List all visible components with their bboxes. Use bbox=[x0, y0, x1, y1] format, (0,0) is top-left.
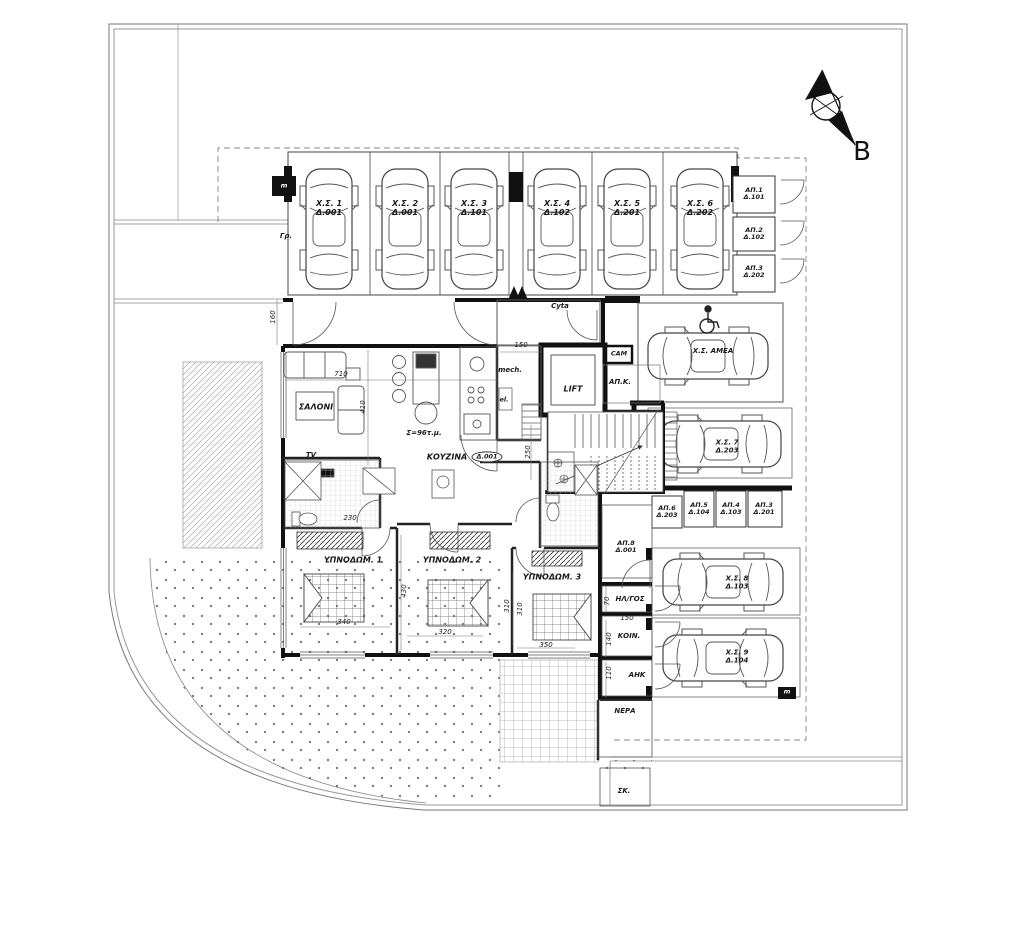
dim-310-a: 310 bbox=[516, 602, 524, 615]
apk-label: ΑΠ.Κ. bbox=[609, 379, 631, 387]
kitchen-label: ΚΟΥΖΙΝΑ bbox=[427, 454, 467, 463]
living-room-label: ΣΑΛΟΝΙ bbox=[299, 404, 333, 413]
stall-7-label: Χ.Σ. 7Δ.203 bbox=[716, 439, 739, 454]
dim-310-b: 310 bbox=[503, 599, 511, 612]
cyta-room bbox=[497, 300, 600, 345]
stall-2-label: Χ.Σ. 2Δ.001 bbox=[392, 200, 418, 218]
storage-ap4-label: ΑΠ.4Δ.103 bbox=[720, 502, 741, 516]
kitchen-fixtures bbox=[393, 347, 498, 440]
stall-8-label: Χ.Σ. 8Δ.103 bbox=[726, 575, 749, 590]
dim-320: 320 bbox=[438, 628, 451, 636]
dim-350: 350 bbox=[539, 641, 552, 649]
north-arrow bbox=[805, 70, 855, 145]
stall-4-label: Χ.Σ. 4Δ.102 bbox=[544, 200, 570, 218]
common-room-label: ΚΟΙΝ. bbox=[618, 633, 641, 641]
garbage-room-label: ΣΚ. bbox=[618, 788, 631, 796]
water-meters-label: ΝΕΡΑ bbox=[614, 708, 635, 716]
stall-1-label: Χ.Σ. 1Δ.001 bbox=[316, 200, 342, 218]
dim-160: 160 bbox=[269, 310, 277, 323]
mailboxes-label: Γρ. bbox=[280, 233, 292, 241]
terrace-grid bbox=[500, 660, 598, 762]
storage-ap2-label: ΑΠ.2Δ.102 bbox=[743, 227, 764, 241]
storage-right-doors bbox=[780, 180, 804, 283]
storage-ap5-label: ΑΠ.5Δ.104 bbox=[688, 502, 709, 516]
storage-ap3-label: ΑΠ.3Δ.202 bbox=[743, 265, 764, 279]
mech-closet bbox=[497, 346, 541, 440]
el-label: el. bbox=[499, 396, 508, 403]
storage-ap3b-label: ΑΠ.3Δ.201 bbox=[753, 502, 774, 516]
sidewalk-dotted-strip bbox=[598, 760, 652, 772]
dim-410: 410 bbox=[359, 400, 367, 413]
dim-230: 230 bbox=[343, 514, 356, 522]
dim-250: 250 bbox=[524, 445, 532, 458]
cam-label: CAM bbox=[611, 350, 627, 357]
dim-150-door: 150 bbox=[620, 614, 633, 622]
wheelchair-icon bbox=[700, 306, 719, 333]
bedroom-3-label: ΥΠΝΟΔΩΜ. 3 bbox=[523, 574, 581, 583]
bedroom-2-label: ΥΠΝΟΔΩΜ. 2 bbox=[423, 557, 481, 566]
dim-340: 340 bbox=[337, 618, 350, 626]
ladder-hatch bbox=[664, 412, 677, 480]
stall-3-label: Χ.Σ. 3Δ.101 bbox=[461, 200, 487, 218]
area-note: Σ=96τ.μ. bbox=[406, 430, 441, 438]
amea-stall-label: Χ.Σ. ΑΜΕΑ bbox=[693, 348, 734, 356]
dim-110: 110 bbox=[605, 666, 613, 679]
bedroom-1-label: ΥΠΝΟΔΩΜ. 1 bbox=[324, 557, 382, 566]
dim-710: 710 bbox=[334, 370, 347, 378]
stall-6-label: Χ.Σ. 6Δ.202 bbox=[687, 200, 713, 218]
storage-ap6-label: ΑΠ.6Δ.203 bbox=[656, 505, 677, 519]
dim-430: 430 bbox=[400, 584, 408, 597]
lift-label: LIFT bbox=[564, 386, 583, 395]
meter-marker: m bbox=[281, 182, 288, 189]
stall-9-label: Χ.Σ. 9Δ.104 bbox=[726, 649, 749, 664]
north-label: B bbox=[853, 137, 871, 167]
dim-150-entry: 150 bbox=[514, 341, 527, 349]
ahk-room-label: ΑΗΚ bbox=[629, 672, 646, 680]
floor-plan-sheet: B m m Γρ. 160 Χ.Σ. 1Δ.001 Χ.Σ. 2Δ.001 Χ.… bbox=[0, 0, 1024, 930]
dim-70: 70 bbox=[603, 597, 611, 606]
mech-label: mech. bbox=[498, 367, 522, 375]
stall-5-label: Χ.Σ. 5Δ.201 bbox=[614, 200, 640, 218]
terrace-hatch-left bbox=[183, 362, 262, 548]
meter-marker-2: m bbox=[784, 688, 791, 695]
storage-ap1-label: ΑΠ.1Δ.101 bbox=[743, 187, 764, 201]
tv-label: TV bbox=[306, 452, 316, 460]
storage-ap8-label: ΑΠ.8Δ.001 bbox=[615, 540, 636, 554]
cyta-label: Cyta bbox=[551, 303, 569, 311]
electrical-room-label: ΗΛ/ΓΟΣ bbox=[615, 596, 644, 604]
lift-shaft bbox=[541, 345, 605, 415]
dim-140: 140 bbox=[605, 632, 613, 645]
